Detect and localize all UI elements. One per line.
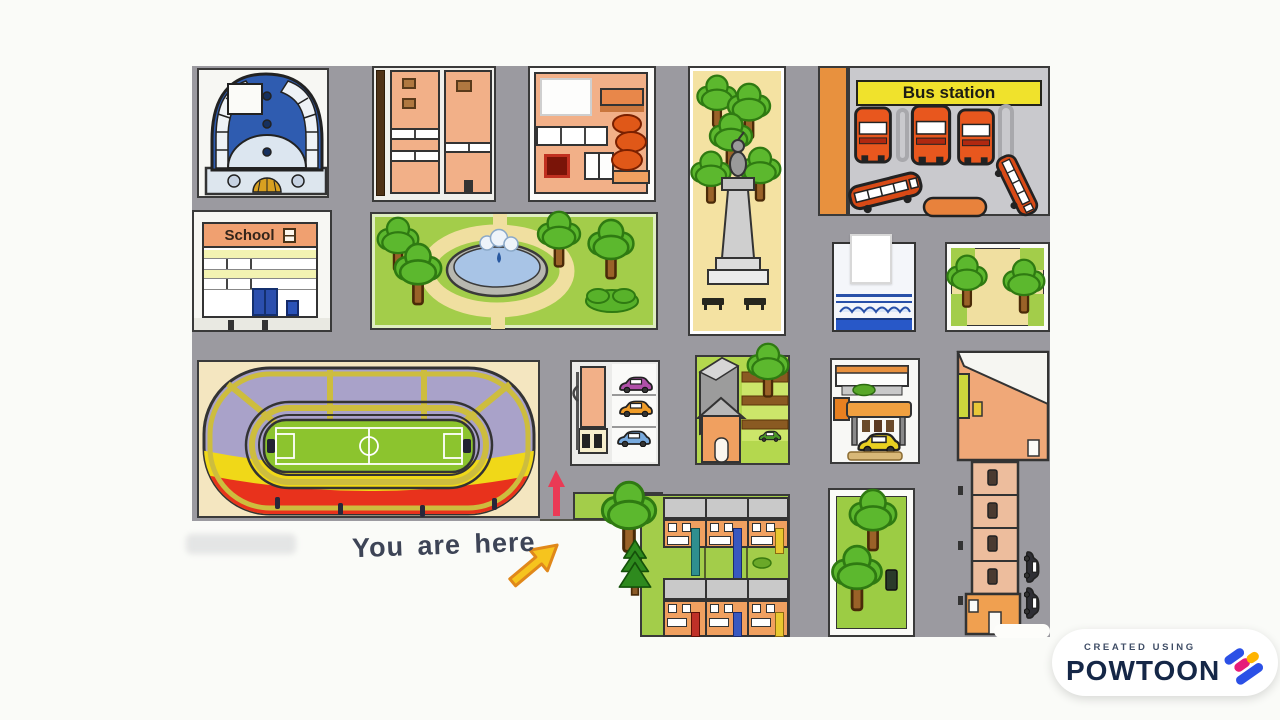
video-frame: Bus station School (0, 0, 1280, 720)
rowhouse-window (668, 604, 677, 613)
window-strip (392, 128, 438, 140)
powtoon-badge[interactable]: CREATED USING POWTOON (1052, 629, 1278, 696)
yard-divider (746, 548, 748, 578)
ghost-smudge (186, 534, 296, 554)
powtoon-logo-icon (1220, 638, 1270, 688)
apartment-window (402, 98, 416, 109)
school-sign: School (204, 224, 316, 248)
rowhouse-roof (663, 497, 789, 519)
rowhouse-door (691, 528, 700, 576)
rowhouse-window (682, 604, 691, 613)
rowhouse-sill (667, 618, 687, 627)
rowhouse-sill (709, 618, 729, 627)
window-strip (446, 142, 490, 153)
bus-station-sign-label: Bus station (903, 83, 996, 103)
tree-plaza-grass (951, 248, 975, 270)
powtoon-wordmark: POWTOON (1066, 655, 1220, 687)
rowhouse-sill (709, 536, 731, 545)
rowhouse-window (724, 523, 733, 532)
parking-kiosk (580, 366, 606, 428)
school-stripe (204, 270, 316, 278)
sidewalk-post (262, 320, 268, 330)
apartment-window (402, 78, 416, 89)
rowhouse-window (766, 604, 775, 613)
stadium-block (197, 360, 540, 518)
tree-plaza-grass (1020, 248, 1044, 270)
apartments-alley-strip (376, 70, 385, 196)
rowhouse-window (710, 604, 719, 613)
rowhouse-window (752, 604, 761, 613)
shop-awning-shadow (600, 106, 644, 112)
created-using-label: CREATED USING (1084, 642, 1196, 653)
rowhouse-window (682, 523, 691, 532)
theater-block (197, 68, 329, 198)
shop-double-door (584, 152, 614, 180)
shop-billboard (540, 78, 592, 116)
kiosk-window (594, 434, 602, 448)
rowhouse-window (710, 523, 719, 532)
small-park-grass (836, 496, 907, 629)
pool-blue-line (836, 294, 912, 297)
rowhouse-sill (751, 536, 773, 545)
house-garden-block (695, 355, 790, 465)
yard-divider (704, 548, 706, 578)
parking-bays (612, 364, 656, 462)
orange-building-strip (818, 66, 848, 216)
tree-plaza-grass (1028, 294, 1044, 326)
flag-icon (283, 228, 296, 243)
rowhouse-window (724, 604, 733, 613)
window-strip (536, 126, 608, 146)
garage-block (830, 358, 920, 464)
window-strip (392, 150, 438, 162)
school-stripe (204, 250, 316, 258)
pool-billboard (850, 234, 892, 284)
rowhouse-door (733, 612, 742, 637)
rowhouse-door (775, 612, 784, 637)
fountain-park-block (370, 212, 658, 330)
rowhouse-roof (663, 578, 789, 600)
rowhouse-window (766, 523, 775, 532)
shop-stand-base (612, 170, 650, 184)
tree-plaza-grass (951, 294, 967, 326)
rowhouse-door (733, 528, 742, 580)
shop-awning-slab (600, 88, 644, 106)
pool-base-strip (836, 318, 912, 330)
rowhouse-door (775, 528, 784, 554)
rowhouse-sill (667, 536, 689, 545)
rowhouse-sill (751, 618, 771, 627)
school-sign-label: School (224, 227, 274, 244)
shop-front-door (544, 154, 570, 178)
apartment-window (456, 80, 472, 92)
kiosk-pole (576, 372, 579, 450)
you-are-here-label: You are here (352, 527, 537, 564)
bus-station-sign: Bus station (856, 80, 1042, 106)
statue-plaza-block (688, 66, 786, 336)
school-window-strip (204, 258, 316, 270)
rowhouse-window (752, 523, 761, 532)
rowhouse-window (668, 523, 677, 532)
school-door (252, 288, 278, 316)
rowhouse-door (691, 612, 700, 637)
apartment-door (464, 180, 473, 192)
sidewalk-post (228, 320, 234, 330)
school-mailbox (286, 300, 299, 316)
kiosk-window (582, 434, 590, 448)
